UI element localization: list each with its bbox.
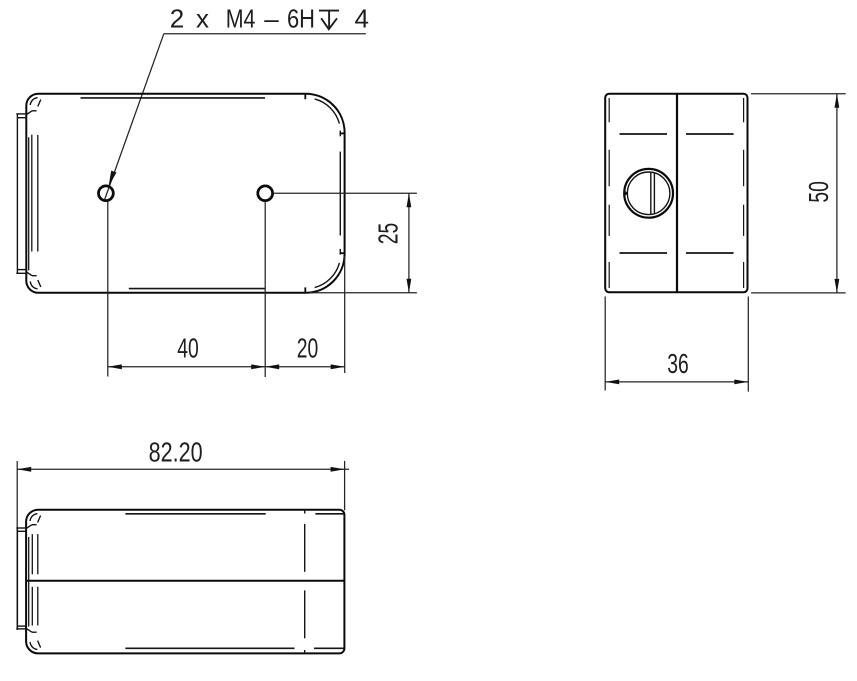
- svg-text:36: 36: [667, 348, 689, 379]
- svg-text:50: 50: [803, 181, 834, 203]
- svg-text:6H: 6H: [287, 3, 315, 33]
- svg-text:–: –: [264, 3, 279, 33]
- svg-text:25: 25: [373, 223, 404, 245]
- svg-text:4: 4: [355, 3, 369, 33]
- svg-text:x: x: [196, 3, 209, 33]
- svg-text:40: 40: [177, 333, 199, 364]
- svg-text:M4: M4: [226, 3, 256, 33]
- svg-text:82.20: 82.20: [149, 436, 203, 467]
- svg-text:20: 20: [297, 333, 319, 364]
- svg-text:2: 2: [170, 3, 184, 33]
